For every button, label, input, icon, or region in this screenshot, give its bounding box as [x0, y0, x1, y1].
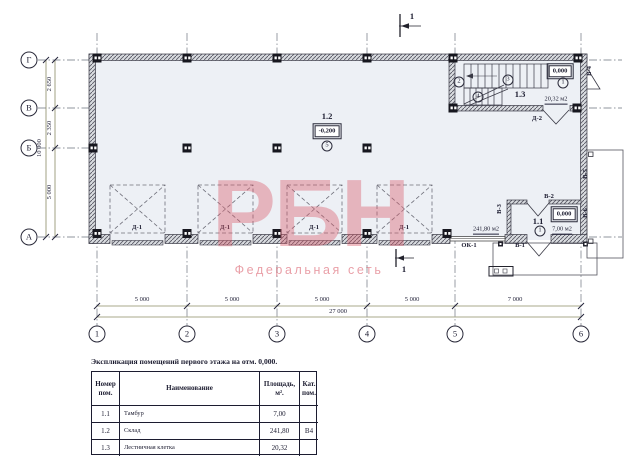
room-storage-area: 241,80 м2 [473, 226, 499, 235]
legend-header-name: Наименование [120, 372, 260, 406]
watermark-subtitle: Федеральная сеть [235, 263, 384, 277]
window-ok1-label: ОК-1 [461, 243, 476, 250]
room-tambour-number: 1.1 [533, 217, 544, 226]
legend-cell-name: Склад [120, 423, 260, 440]
legend-cell-name: Лестничная клетка [120, 440, 260, 456]
watermark-logo: РБН [212, 173, 408, 255]
legend-header-category: Кат. пом. [300, 372, 318, 406]
room-stairwell-area: 20,32 м2 [545, 96, 568, 105]
room-storage-number: 1.2 [322, 112, 333, 121]
legend-cell-area: 7,00 [260, 406, 300, 423]
stairwell-zone-2-badge: 2 [454, 77, 465, 88]
legend-cell-number: 1.2 [92, 423, 120, 440]
dim-bottom-23: 5 000 [225, 297, 240, 304]
door-v5-label: В-5 [583, 169, 590, 179]
dim-left-vb: 2 350 [47, 121, 54, 136]
axis-col-3: 3 [269, 326, 286, 343]
dim-left-ba: 5 000 [47, 185, 54, 200]
stairwell-zone-4-badge: 4 [473, 92, 484, 103]
legend-cell-area: 20,32 [260, 440, 300, 456]
axis-col-1: 1 [89, 326, 106, 343]
axis-row-g: Г [21, 52, 38, 69]
room-tambour-elevation: 0,000 [553, 208, 576, 220]
stairwell-zone-3-badge: 3 [503, 75, 514, 86]
dim-bottom-total: 27 000 [329, 309, 347, 316]
dim-bottom-12: 5 000 [135, 297, 150, 304]
legend-header-area: Площадь, м². [260, 372, 300, 406]
tambour-zone-badge: 1 [535, 226, 546, 237]
dim-left-total: 10 000 [37, 139, 44, 157]
window-ok1-glyph [450, 237, 505, 242]
door-v1-label: В-1 [515, 243, 525, 250]
gate-label-1: Д-1 [132, 225, 142, 232]
legend-cell-category [300, 406, 318, 423]
legend-cell-area: 241,80 [260, 423, 300, 440]
legend-table: Номер пом. Наименование Площадь, м². Кат… [91, 371, 317, 455]
side-platform [587, 150, 623, 258]
dim-bottom-34: 5 000 [315, 297, 330, 304]
room-storage-zone-badge: 5 [322, 141, 333, 152]
stairwell-zone-1-badge: 1 [558, 78, 569, 89]
legend-title: Экспликация помещений первого этажа на о… [91, 357, 277, 366]
room-storage-elevation: -0,200 [315, 125, 340, 137]
room-stairwell-number: 1.3 [515, 90, 526, 99]
legend-cell-category [300, 440, 318, 456]
axis-col-5: 5 [447, 326, 464, 343]
room-stairwell-elevation: 0,000 [549, 65, 572, 77]
floor-plan-sheet: Г В Б А 1 2 3 4 5 6 2 650 2 350 5 000 10… [0, 0, 631, 465]
door-v6-label: В-6 [583, 208, 590, 218]
axis-row-a: А [21, 229, 38, 246]
axis-col-4: 4 [359, 326, 376, 343]
door-v4-label: В-4 [587, 66, 594, 76]
axis-col-6: 6 [573, 326, 590, 343]
axis-row-v: В [21, 100, 38, 117]
door-v2-label: В-2 [544, 194, 554, 201]
legend-cell-category: В4 [300, 423, 318, 440]
dim-left-gv: 2 650 [47, 77, 54, 92]
dim-bottom-56: 7 000 [508, 297, 523, 304]
legend-cell-name: Тамбур [120, 406, 260, 423]
door-v3-label: В-3 [497, 204, 504, 214]
legend-cell-number: 1.3 [92, 440, 120, 456]
axis-col-2: 2 [179, 326, 196, 343]
door-d2-label: Д-2 [532, 116, 542, 123]
legend-cell-number: 1.1 [92, 406, 120, 423]
room-tambour-area: 7,00 м2 [552, 226, 572, 235]
section-label-top: 1 [410, 12, 414, 21]
dim-bottom-45: 5 000 [405, 297, 420, 304]
legend-header-number: Номер пом. [92, 372, 120, 406]
